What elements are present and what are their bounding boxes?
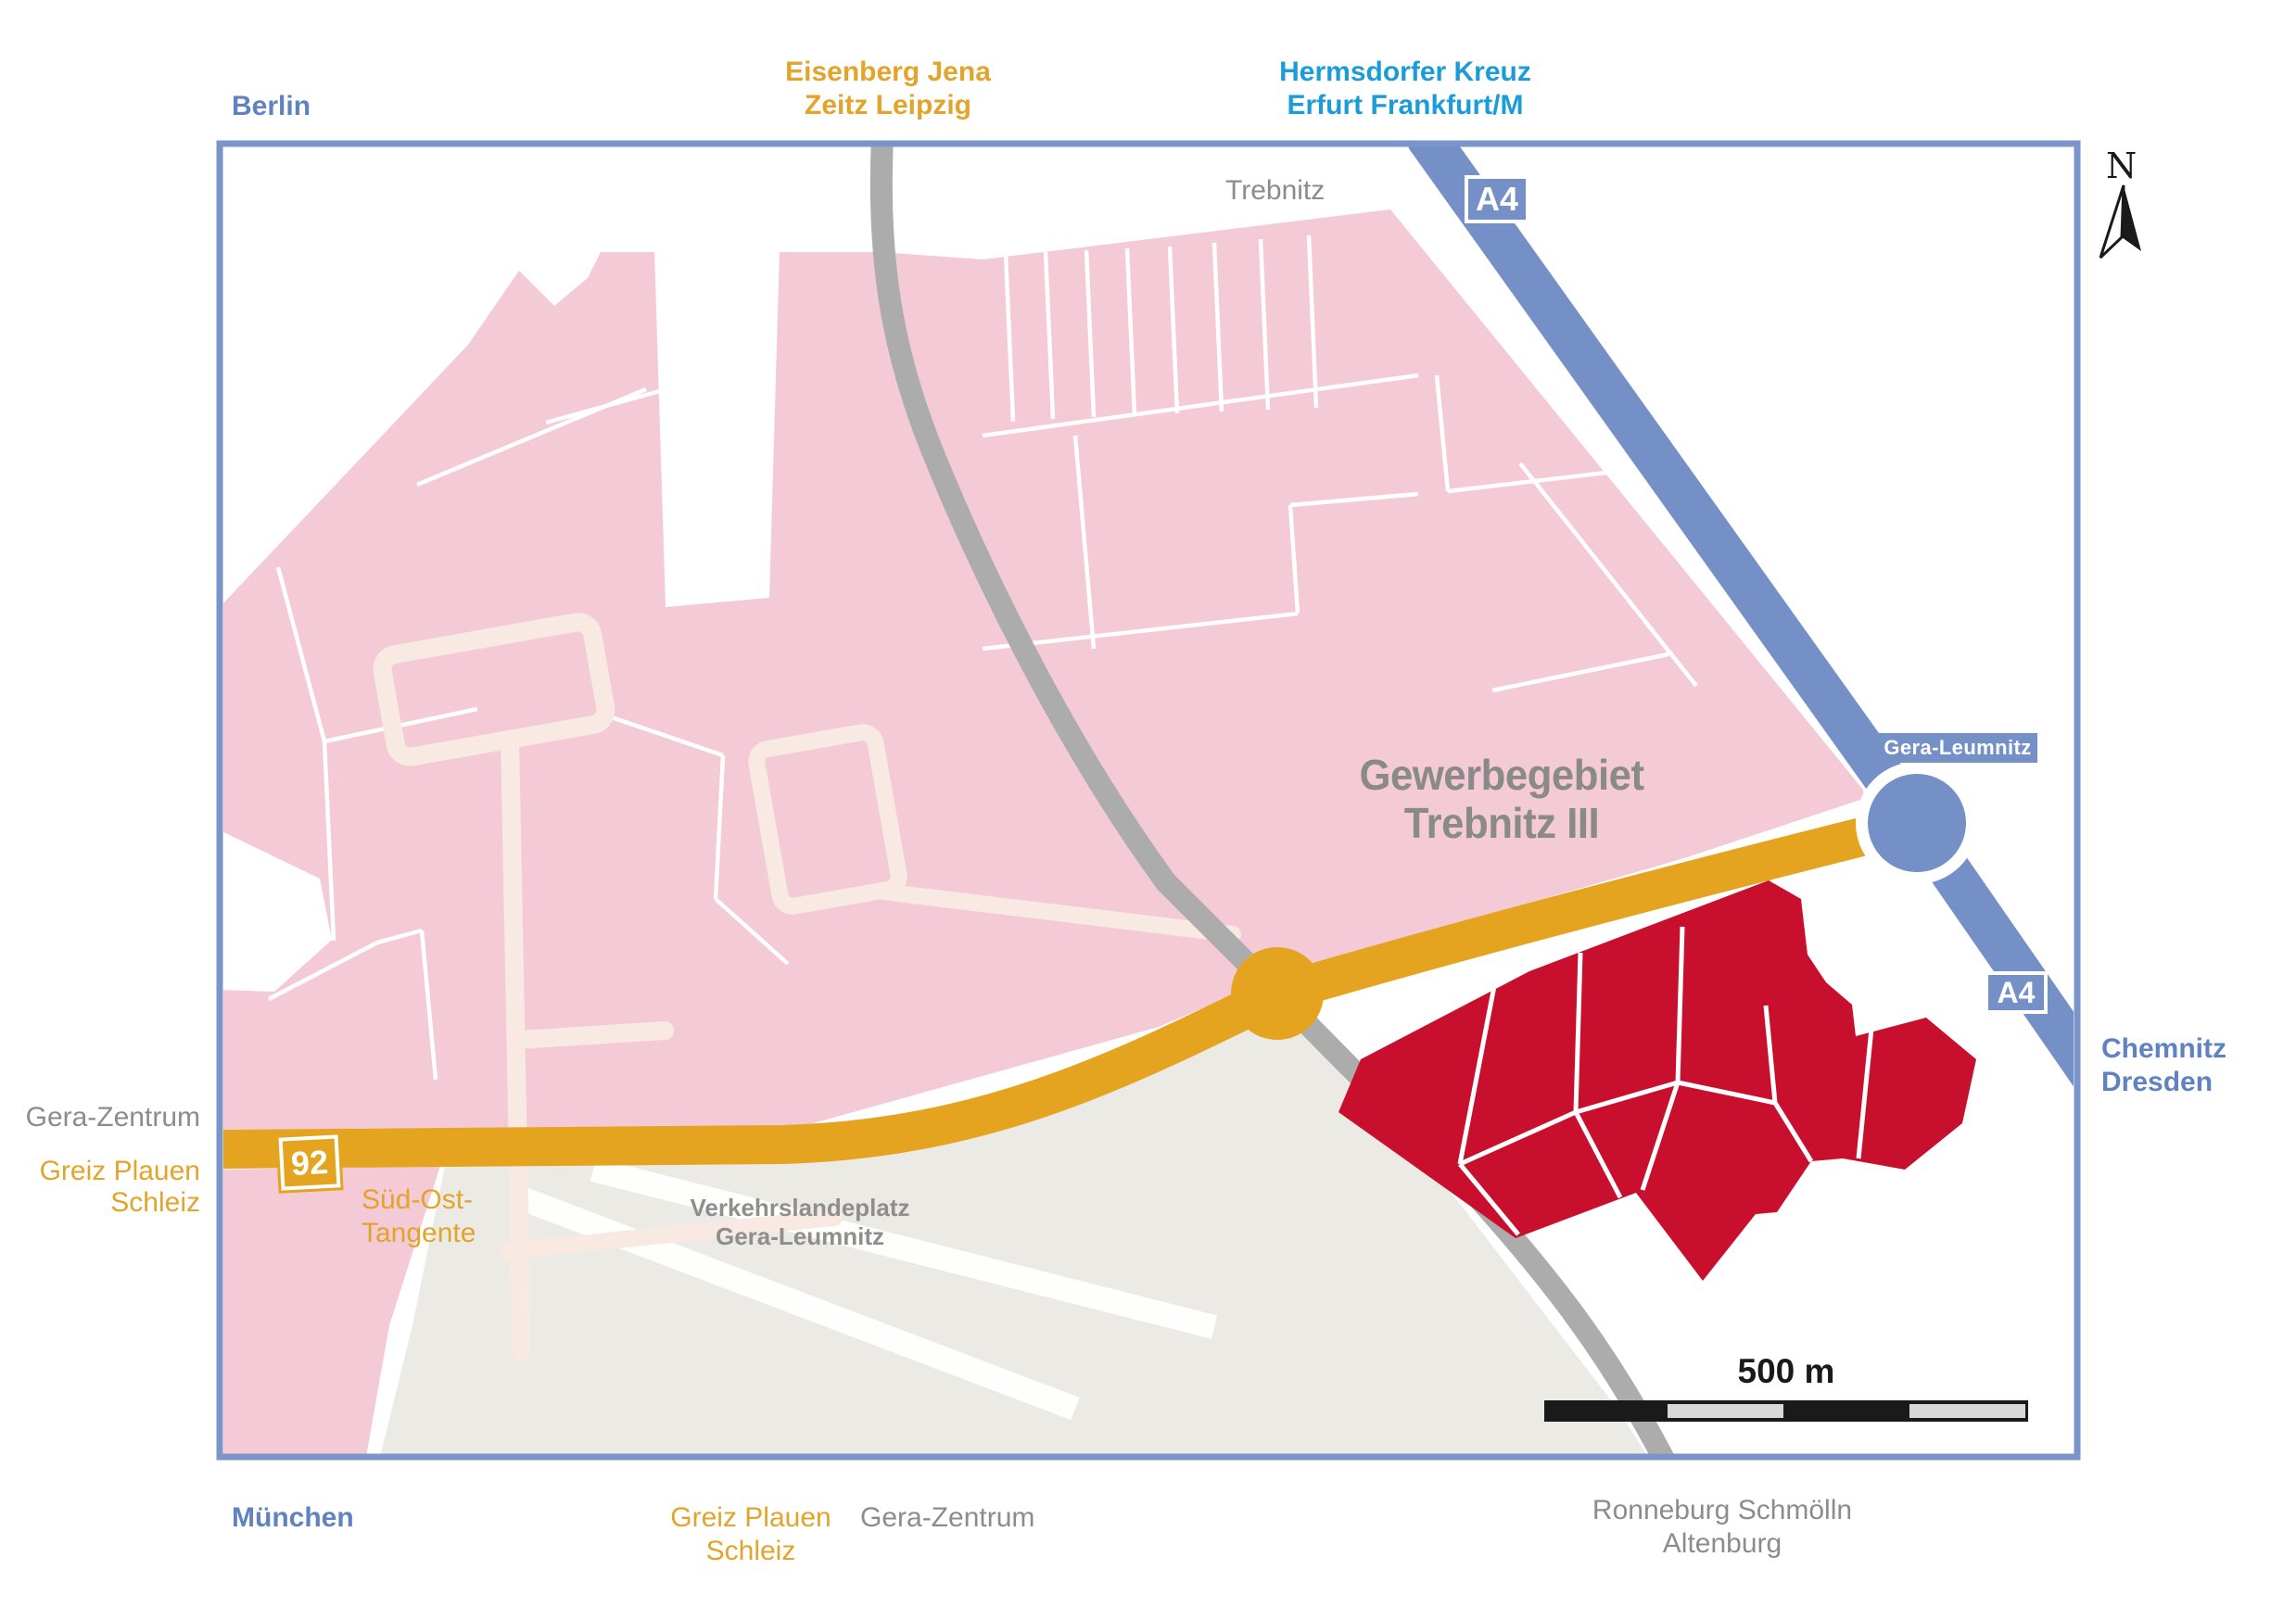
- label-line: Dresden: [2101, 1066, 2226, 1099]
- north-letter: N: [2106, 146, 2137, 186]
- label-line: Süd-Ost-: [362, 1183, 476, 1217]
- minor-road-branch: [519, 1031, 665, 1040]
- label-line: Schleiz: [0, 1187, 200, 1219]
- label-gera-zentrum-south: Gera-Zentrum: [860, 1501, 1034, 1535]
- label-berlin: Berlin: [232, 90, 311, 123]
- label-greiz-plauen-schleiz-south: Greiz Plauen Schleiz: [649, 1501, 853, 1568]
- label-gewerbegebiet-trebnitz: Gewerbegebiet Trebnitz III: [1352, 751, 1652, 847]
- label-line: Greiz Plauen: [0, 1156, 200, 1187]
- badge-a4-top: A4: [1465, 175, 1529, 223]
- label-line: Hermsdorfer Kreuz: [1257, 56, 1554, 89]
- label-line: Gewerbegebiet: [1352, 751, 1652, 799]
- badge-gera-leumnitz: Gera-Leumnitz: [1878, 733, 2037, 763]
- site-location-map: N Berlin Eisenberg Jena Zeitz Leipzig He…: [0, 0, 2296, 1620]
- label-sued-ost-tangente: Süd-Ost- Tangente: [362, 1183, 476, 1250]
- label-line: Schleiz: [649, 1535, 853, 1568]
- badge-a4-exit: A4: [1985, 971, 2048, 1014]
- scale-bar-label: 500 m: [1693, 1355, 1879, 1388]
- label-muenchen: München: [232, 1501, 354, 1535]
- label-line: Trebnitz III: [1352, 799, 1652, 847]
- label-line: Greiz Plauen: [649, 1501, 853, 1535]
- interchange-roundabout-blue: [1868, 774, 1966, 872]
- label-hermsdorfer-kreuz: Hermsdorfer Kreuz Erfurt Frankfurt/M: [1257, 56, 1554, 122]
- label-line: Erfurt Frankfurt/M: [1257, 89, 1554, 122]
- label-greiz-plauen-schleiz-west: Greiz Plauen Schleiz: [0, 1156, 200, 1219]
- label-line: Ronneburg Schmölln: [1574, 1494, 1871, 1527]
- label-eisenberg-jena: Eisenberg Jena Zeitz Leipzig: [740, 56, 1036, 122]
- label-line: Gera-Leumnitz: [679, 1222, 920, 1251]
- label-gera-zentrum-west: Gera-Zentrum: [0, 1101, 200, 1134]
- white-gap-street: [654, 250, 780, 607]
- badge-b92: 92: [279, 1134, 341, 1190]
- map-canvas: N: [0, 0, 2296, 1620]
- label-line: Tangente: [362, 1217, 476, 1250]
- junction-roundabout-yellow: [1231, 947, 1324, 1040]
- label-trebnitz: Trebnitz: [1225, 174, 1325, 208]
- label-chemnitz-dresden: Chemnitz Dresden: [2101, 1032, 2226, 1099]
- north-arrow-icon: N: [2100, 146, 2141, 258]
- label-line: Eisenberg Jena: [740, 56, 1036, 89]
- label-verkehrslandeplatz: Verkehrslandeplatz Gera-Leumnitz: [679, 1194, 920, 1251]
- label-line: Chemnitz: [2101, 1032, 2226, 1066]
- label-line: Zeitz Leipzig: [740, 89, 1036, 122]
- label-line: Altenburg: [1574, 1527, 1871, 1561]
- label-line: Verkehrslandeplatz: [679, 1194, 920, 1222]
- label-ronneburg-altenburg: Ronneburg Schmölln Altenburg: [1574, 1494, 1871, 1561]
- scale-bar: [1544, 1400, 2028, 1422]
